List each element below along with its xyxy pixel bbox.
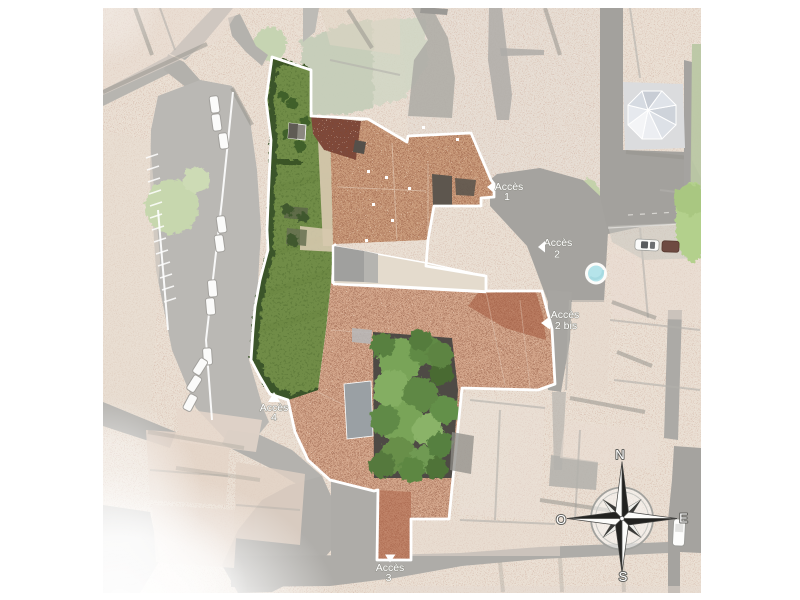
- svg-text:2: 2: [554, 249, 560, 261]
- svg-text:E: E: [679, 511, 688, 526]
- svg-text:S: S: [619, 569, 628, 584]
- svg-text:3: 3: [386, 572, 392, 584]
- svg-text:Accès: Accès: [544, 237, 573, 249]
- svg-text:2 bis: 2 bis: [555, 320, 577, 332]
- svg-text:4: 4: [271, 412, 277, 424]
- svg-text:N: N: [615, 447, 624, 462]
- svg-text:O: O: [556, 512, 566, 527]
- svg-text:1: 1: [504, 191, 510, 203]
